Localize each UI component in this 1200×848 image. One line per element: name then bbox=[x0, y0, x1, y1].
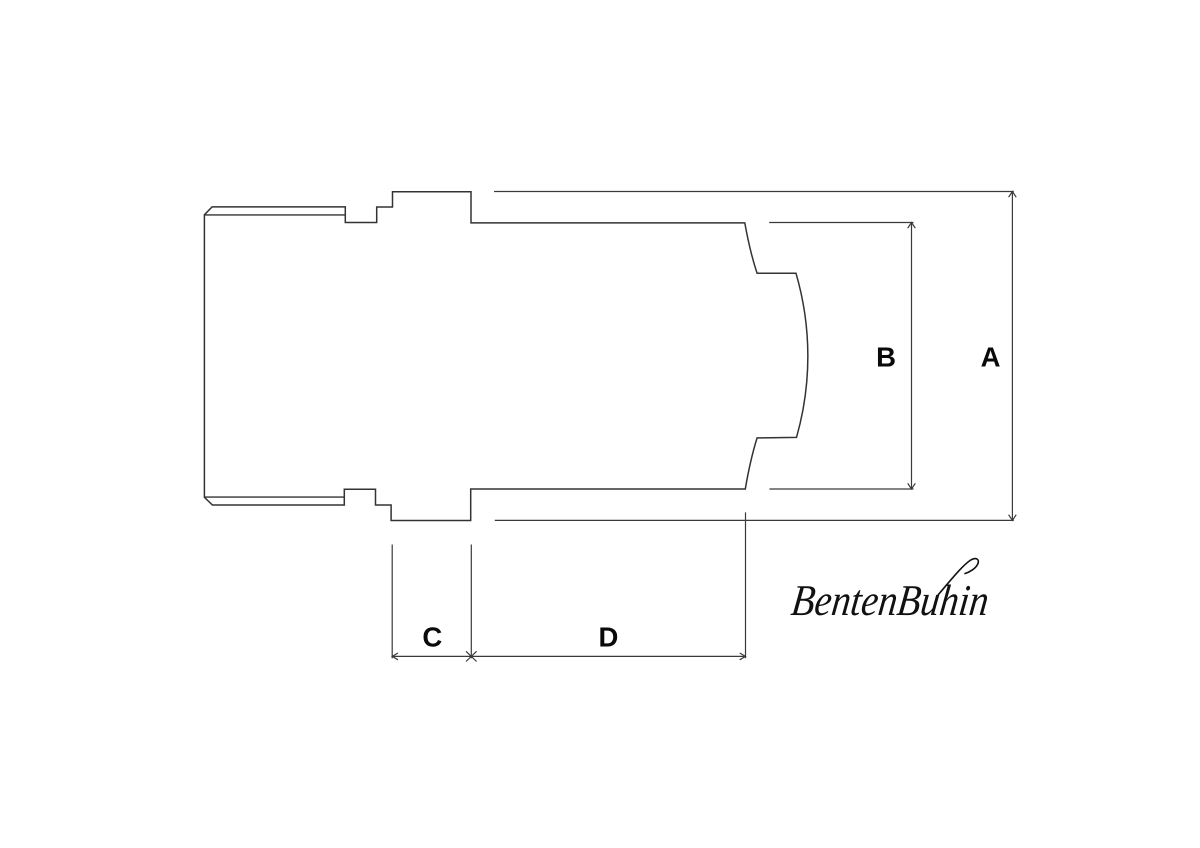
svg-text:B: B bbox=[876, 342, 896, 373]
svg-text:C: C bbox=[422, 622, 442, 653]
svg-text:BentenBuhin: BentenBuhin bbox=[789, 576, 992, 625]
svg-text:D: D bbox=[598, 622, 618, 653]
svg-text:A: A bbox=[981, 342, 1001, 373]
